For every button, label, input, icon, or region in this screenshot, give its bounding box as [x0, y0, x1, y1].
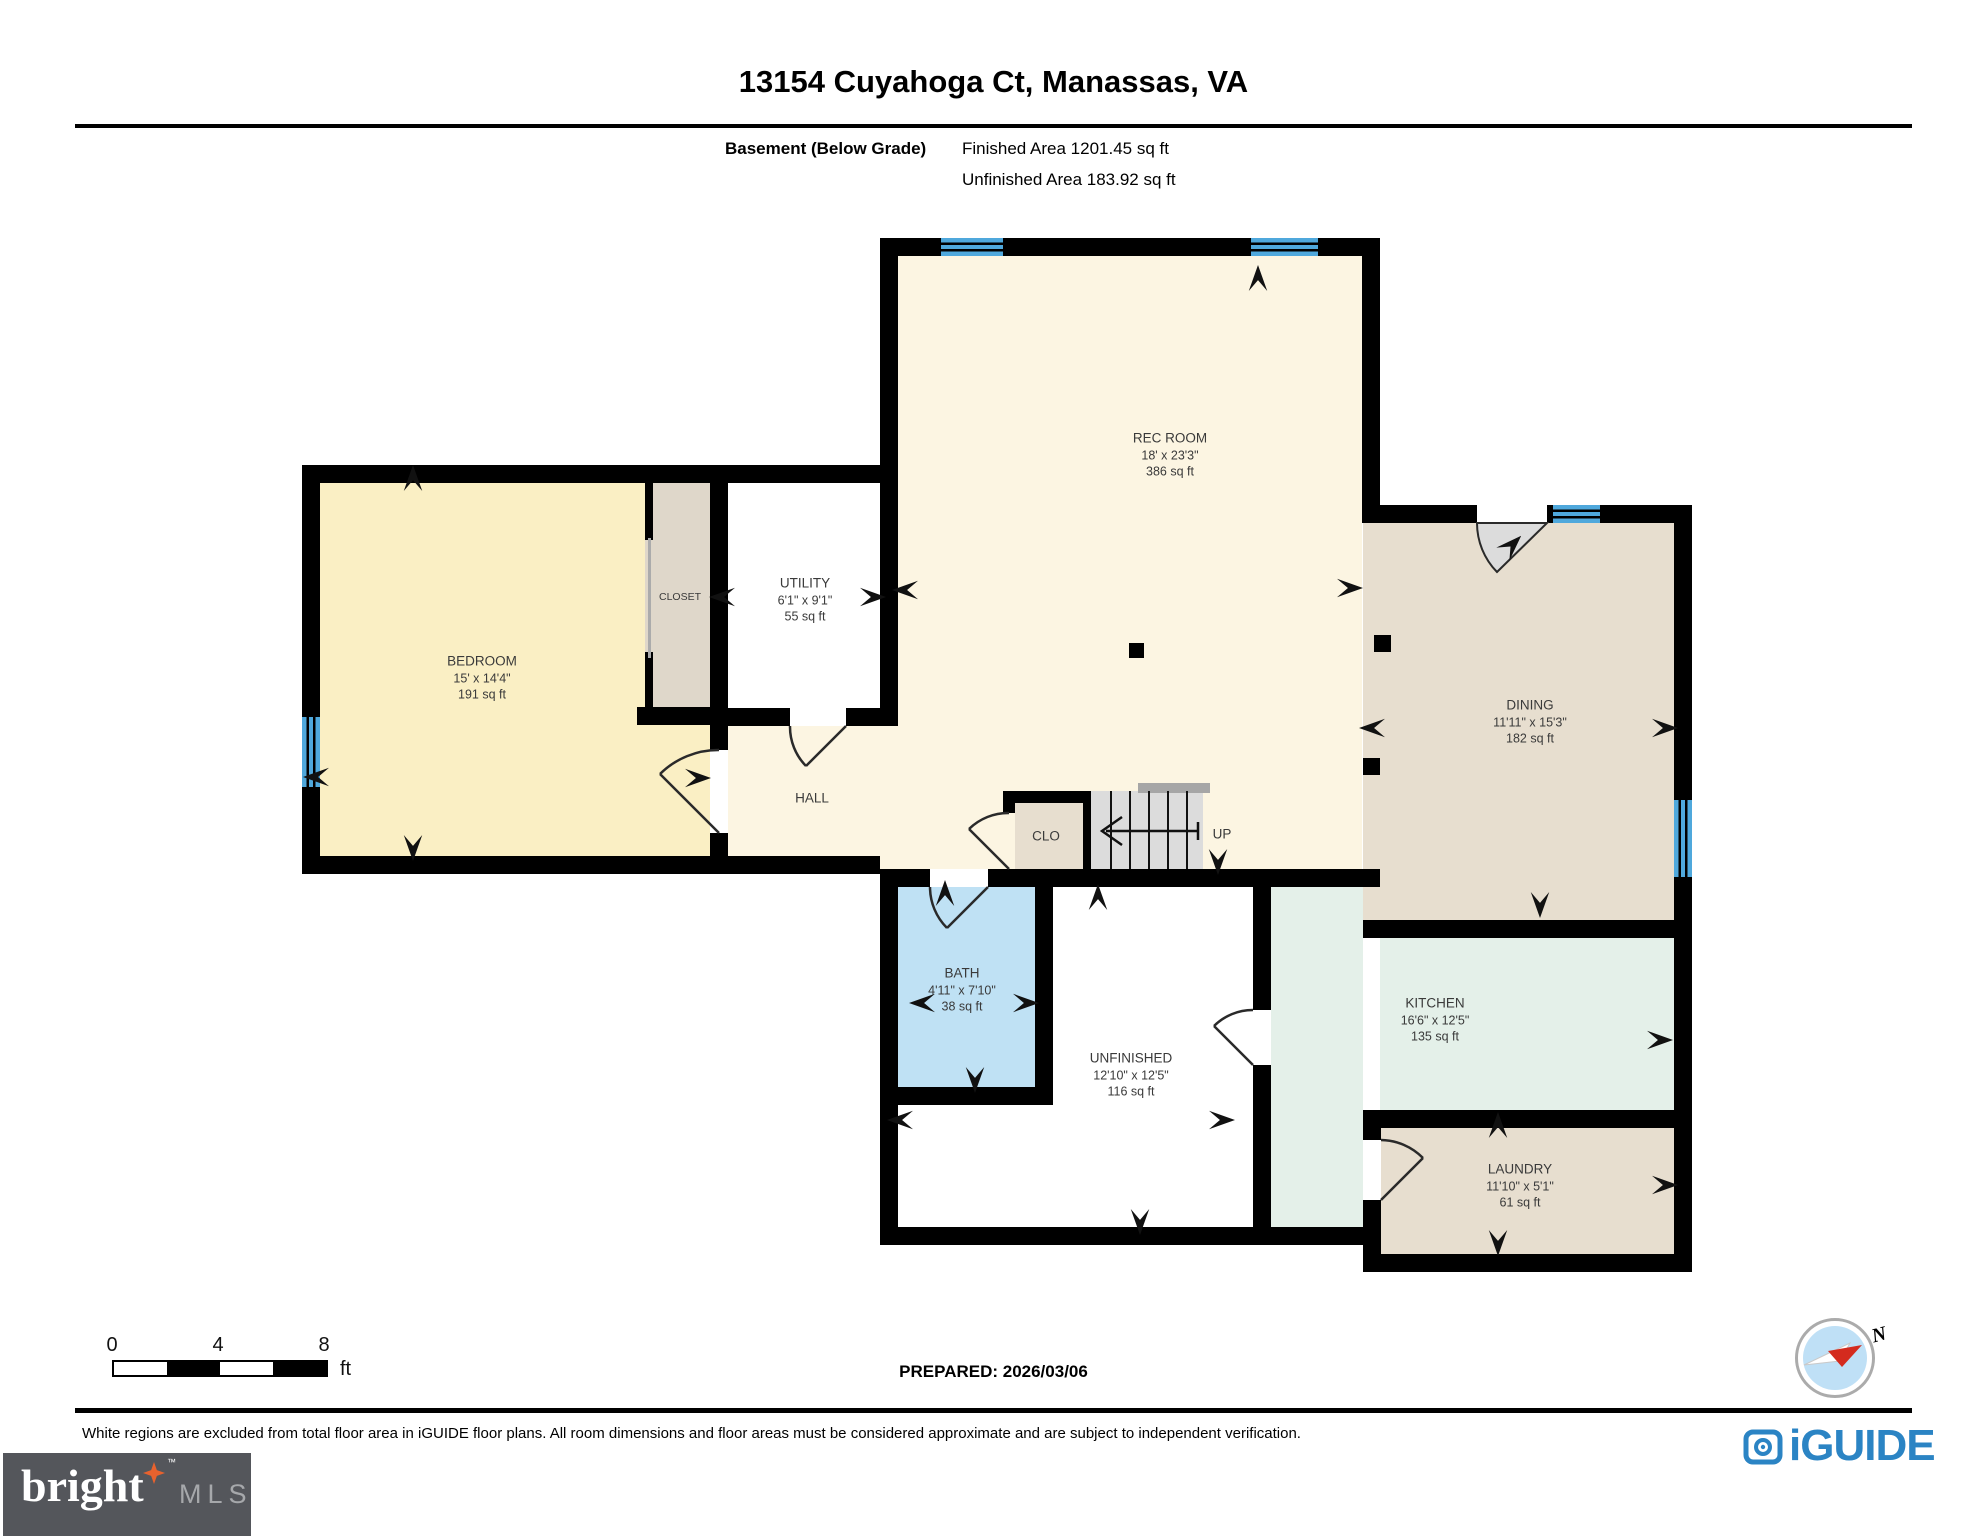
finished-area-text: Finished Area 1201.45 sq ft	[962, 139, 1169, 159]
room-fill-rec-room	[898, 256, 1362, 869]
wall	[1674, 877, 1692, 1272]
window	[1674, 800, 1692, 877]
wall	[728, 708, 790, 726]
mls-logo-text: MLS	[179, 1479, 253, 1510]
floor-label: Basement (Below Grade)	[725, 139, 926, 159]
bright-logo-text: bright	[21, 1459, 144, 1512]
direction-arrow	[1209, 1109, 1235, 1131]
wall	[988, 869, 1380, 887]
room-label-bath: BATH 4'11" x 7'10" 38 sq ft	[928, 965, 996, 1016]
wall	[302, 465, 320, 717]
wall	[1362, 238, 1380, 523]
window	[941, 238, 1003, 256]
wall	[1363, 920, 1674, 938]
room-name: LAUNDRY	[1486, 1161, 1554, 1179]
wall	[1003, 238, 1251, 256]
wall	[846, 708, 882, 726]
wall	[1363, 1110, 1381, 1140]
room-area: 38 sq ft	[928, 999, 996, 1016]
wall	[302, 465, 898, 483]
room-dims: 11'11" x 15'3"	[1493, 714, 1567, 731]
stair-tread	[1148, 791, 1150, 869]
room-area: 55 sq ft	[778, 609, 833, 626]
room-name: BEDROOM	[447, 653, 517, 671]
room-label-kitchen: KITCHEN 16'6" x 12'5" 135 sq ft	[1401, 995, 1470, 1046]
wall	[1253, 887, 1271, 1010]
room-name: UNFINISHED	[1090, 1050, 1173, 1068]
wall	[1003, 803, 1015, 813]
wall	[1253, 1227, 1363, 1245]
room-name: UTILITY	[778, 575, 833, 593]
room-dims: 6'1" x 9'1"	[778, 592, 833, 609]
room-dims: 4'11" x 7'10"	[928, 982, 996, 999]
disclaimer-text: White regions are excluded from total fl…	[82, 1425, 1301, 1442]
stair-tread	[1110, 791, 1112, 869]
wall	[880, 1087, 1053, 1105]
room-label-dining: DINING 11'11" x 15'3" 182 sq ft	[1493, 697, 1567, 748]
window	[1251, 238, 1318, 256]
scale-tick-0: 0	[106, 1334, 117, 1357]
iguide-logo-text: iGUIDE	[1789, 1421, 1935, 1471]
room-fill-kitchen-lower	[1271, 1110, 1363, 1227]
room-dims: 12'10" x 12'5"	[1090, 1067, 1173, 1084]
room-dims: 15' x 14'4"	[447, 670, 517, 687]
stair-tread	[1167, 791, 1169, 869]
room-label-laundry: LAUNDRY 11'10" x 5'1" 61 sq ft	[1486, 1161, 1554, 1212]
header-rule	[75, 124, 1912, 128]
room-dims: 11'10" x 5'1"	[1486, 1178, 1554, 1195]
iguide-logo: iGUIDE	[1743, 1421, 1935, 1471]
page-title: 13154 Cuyahoga Ct, Manassas, VA	[0, 64, 1987, 100]
structural-post	[1129, 643, 1144, 658]
wall	[880, 1227, 1271, 1245]
scale-tick-8: 8	[318, 1334, 329, 1357]
wall	[1363, 1254, 1692, 1272]
wall	[1003, 791, 1091, 803]
window	[1553, 505, 1600, 523]
wall	[1362, 505, 1477, 523]
wall	[1363, 1110, 1674, 1128]
room-label-closet: CLOSET	[659, 591, 701, 605]
unfinished-area-text: Unfinished Area 183.92 sq ft	[962, 170, 1176, 190]
wall	[1035, 887, 1053, 1105]
room-area: 116 sq ft	[1090, 1084, 1173, 1101]
room-area: 182 sq ft	[1493, 731, 1567, 748]
prepared-date: PREPARED: 2026/03/06	[0, 1362, 1987, 1382]
compass-icon	[1795, 1318, 1875, 1398]
structural-post	[1363, 758, 1380, 775]
room-label-clo: CLO	[1032, 829, 1060, 844]
bright-mls-logo: bright ™ MLS	[3, 1453, 251, 1536]
structural-post	[1374, 635, 1391, 652]
room-name: CLOSET	[659, 591, 701, 605]
compass-needle	[1798, 1321, 1872, 1395]
wall	[880, 869, 898, 1245]
wall	[1363, 1200, 1381, 1254]
stair-tread	[1186, 791, 1188, 869]
room-label-rec-room: REC ROOM 18' x 23'3" 386 sq ft	[1133, 430, 1207, 481]
room-area: 135 sq ft	[1401, 1029, 1470, 1046]
stairs-up-label: UP	[1213, 827, 1232, 842]
room-area: 61 sq ft	[1486, 1195, 1554, 1212]
wall	[880, 238, 941, 256]
direction-arrow	[1087, 884, 1109, 910]
wall	[1083, 791, 1091, 869]
room-label-hall: HALL	[795, 791, 829, 806]
wall	[637, 707, 718, 725]
wall	[1253, 1065, 1271, 1245]
closet-jamb	[645, 652, 653, 707]
bright-star-icon	[143, 1462, 165, 1484]
room-name: REC ROOM	[1133, 430, 1207, 448]
room-name: KITCHEN	[1401, 995, 1470, 1013]
wall	[302, 856, 880, 874]
floor-plan-sheet: 13154 Cuyahoga Ct, Manassas, VA Basement…	[0, 0, 1987, 1536]
room-area: 386 sq ft	[1133, 464, 1207, 481]
wall	[710, 833, 728, 856]
wall	[710, 726, 728, 750]
room-label-bedroom: BEDROOM 15' x 14'4" 191 sq ft	[447, 653, 517, 704]
wall	[880, 238, 898, 726]
room-name: DINING	[1493, 697, 1567, 715]
room-name: BATH	[928, 965, 996, 983]
room-label-utility: UTILITY 6'1" x 9'1" 55 sq ft	[778, 575, 833, 626]
room-dims: 16'6" x 12'5"	[1401, 1012, 1470, 1029]
scale-tick-4: 4	[212, 1334, 223, 1357]
iguide-camera-icon	[1743, 1426, 1783, 1466]
room-dims: 18' x 23'3"	[1133, 447, 1207, 464]
wall	[1674, 505, 1692, 800]
closet-sliding-door	[648, 538, 651, 658]
bright-trademark: ™	[167, 1457, 176, 1467]
room-area: 191 sq ft	[447, 687, 517, 704]
stair-tread	[1129, 791, 1131, 869]
room-label-unfinished: UNFINISHED 12'10" x 12'5" 116 sq ft	[1090, 1050, 1173, 1101]
footer-rule	[75, 1408, 1912, 1413]
room-fill-kitchen-left	[1271, 887, 1363, 1110]
closet-jamb	[645, 483, 653, 540]
